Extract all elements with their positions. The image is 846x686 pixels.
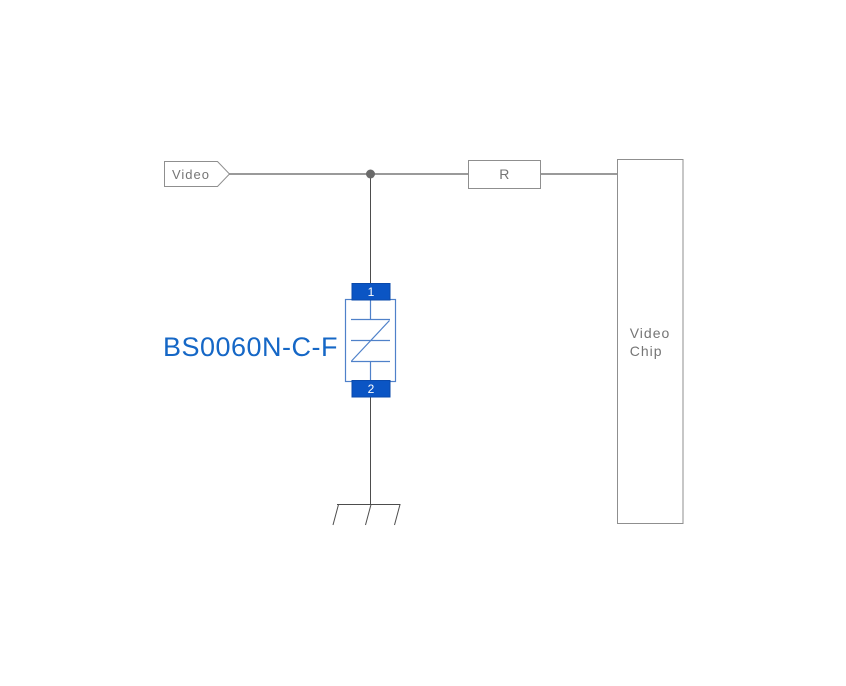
pin-2-number: 2	[352, 380, 390, 397]
ground-slash-left	[333, 505, 339, 526]
component-part-number: BS0060N-C-F	[150, 332, 338, 362]
schematic-canvas: Video R Video Chip 1 2 BS0060N-C-F	[0, 0, 846, 686]
video-port-label: Video	[164, 161, 218, 187]
ground-slash-middle	[366, 505, 372, 526]
junction-dot	[366, 170, 375, 179]
schematic-svg	[0, 0, 846, 686]
chip-label-line1: Video	[630, 324, 671, 342]
resistor-label: R	[468, 160, 541, 188]
chip-label: Video Chip	[617, 159, 683, 524]
ground-slash-right	[395, 505, 401, 526]
pin-1-number: 1	[352, 283, 390, 300]
chip-label-line2: Chip	[630, 342, 671, 360]
